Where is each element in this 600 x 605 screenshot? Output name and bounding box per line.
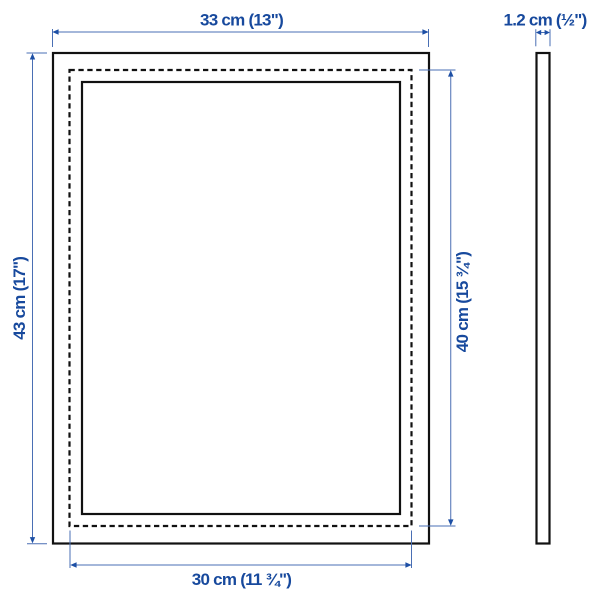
svg-text:33 cm (13"): 33 cm (13") — [200, 10, 283, 29]
svg-text:1.2 cm (½"): 1.2 cm (½") — [504, 10, 587, 29]
svg-text:43 cm (17"): 43 cm (17") — [10, 257, 29, 340]
svg-text:40 cm (15 ¾"): 40 cm (15 ¾") — [453, 252, 472, 352]
svg-text:30 cm (11 ¾"): 30 cm (11 ¾") — [192, 570, 292, 589]
